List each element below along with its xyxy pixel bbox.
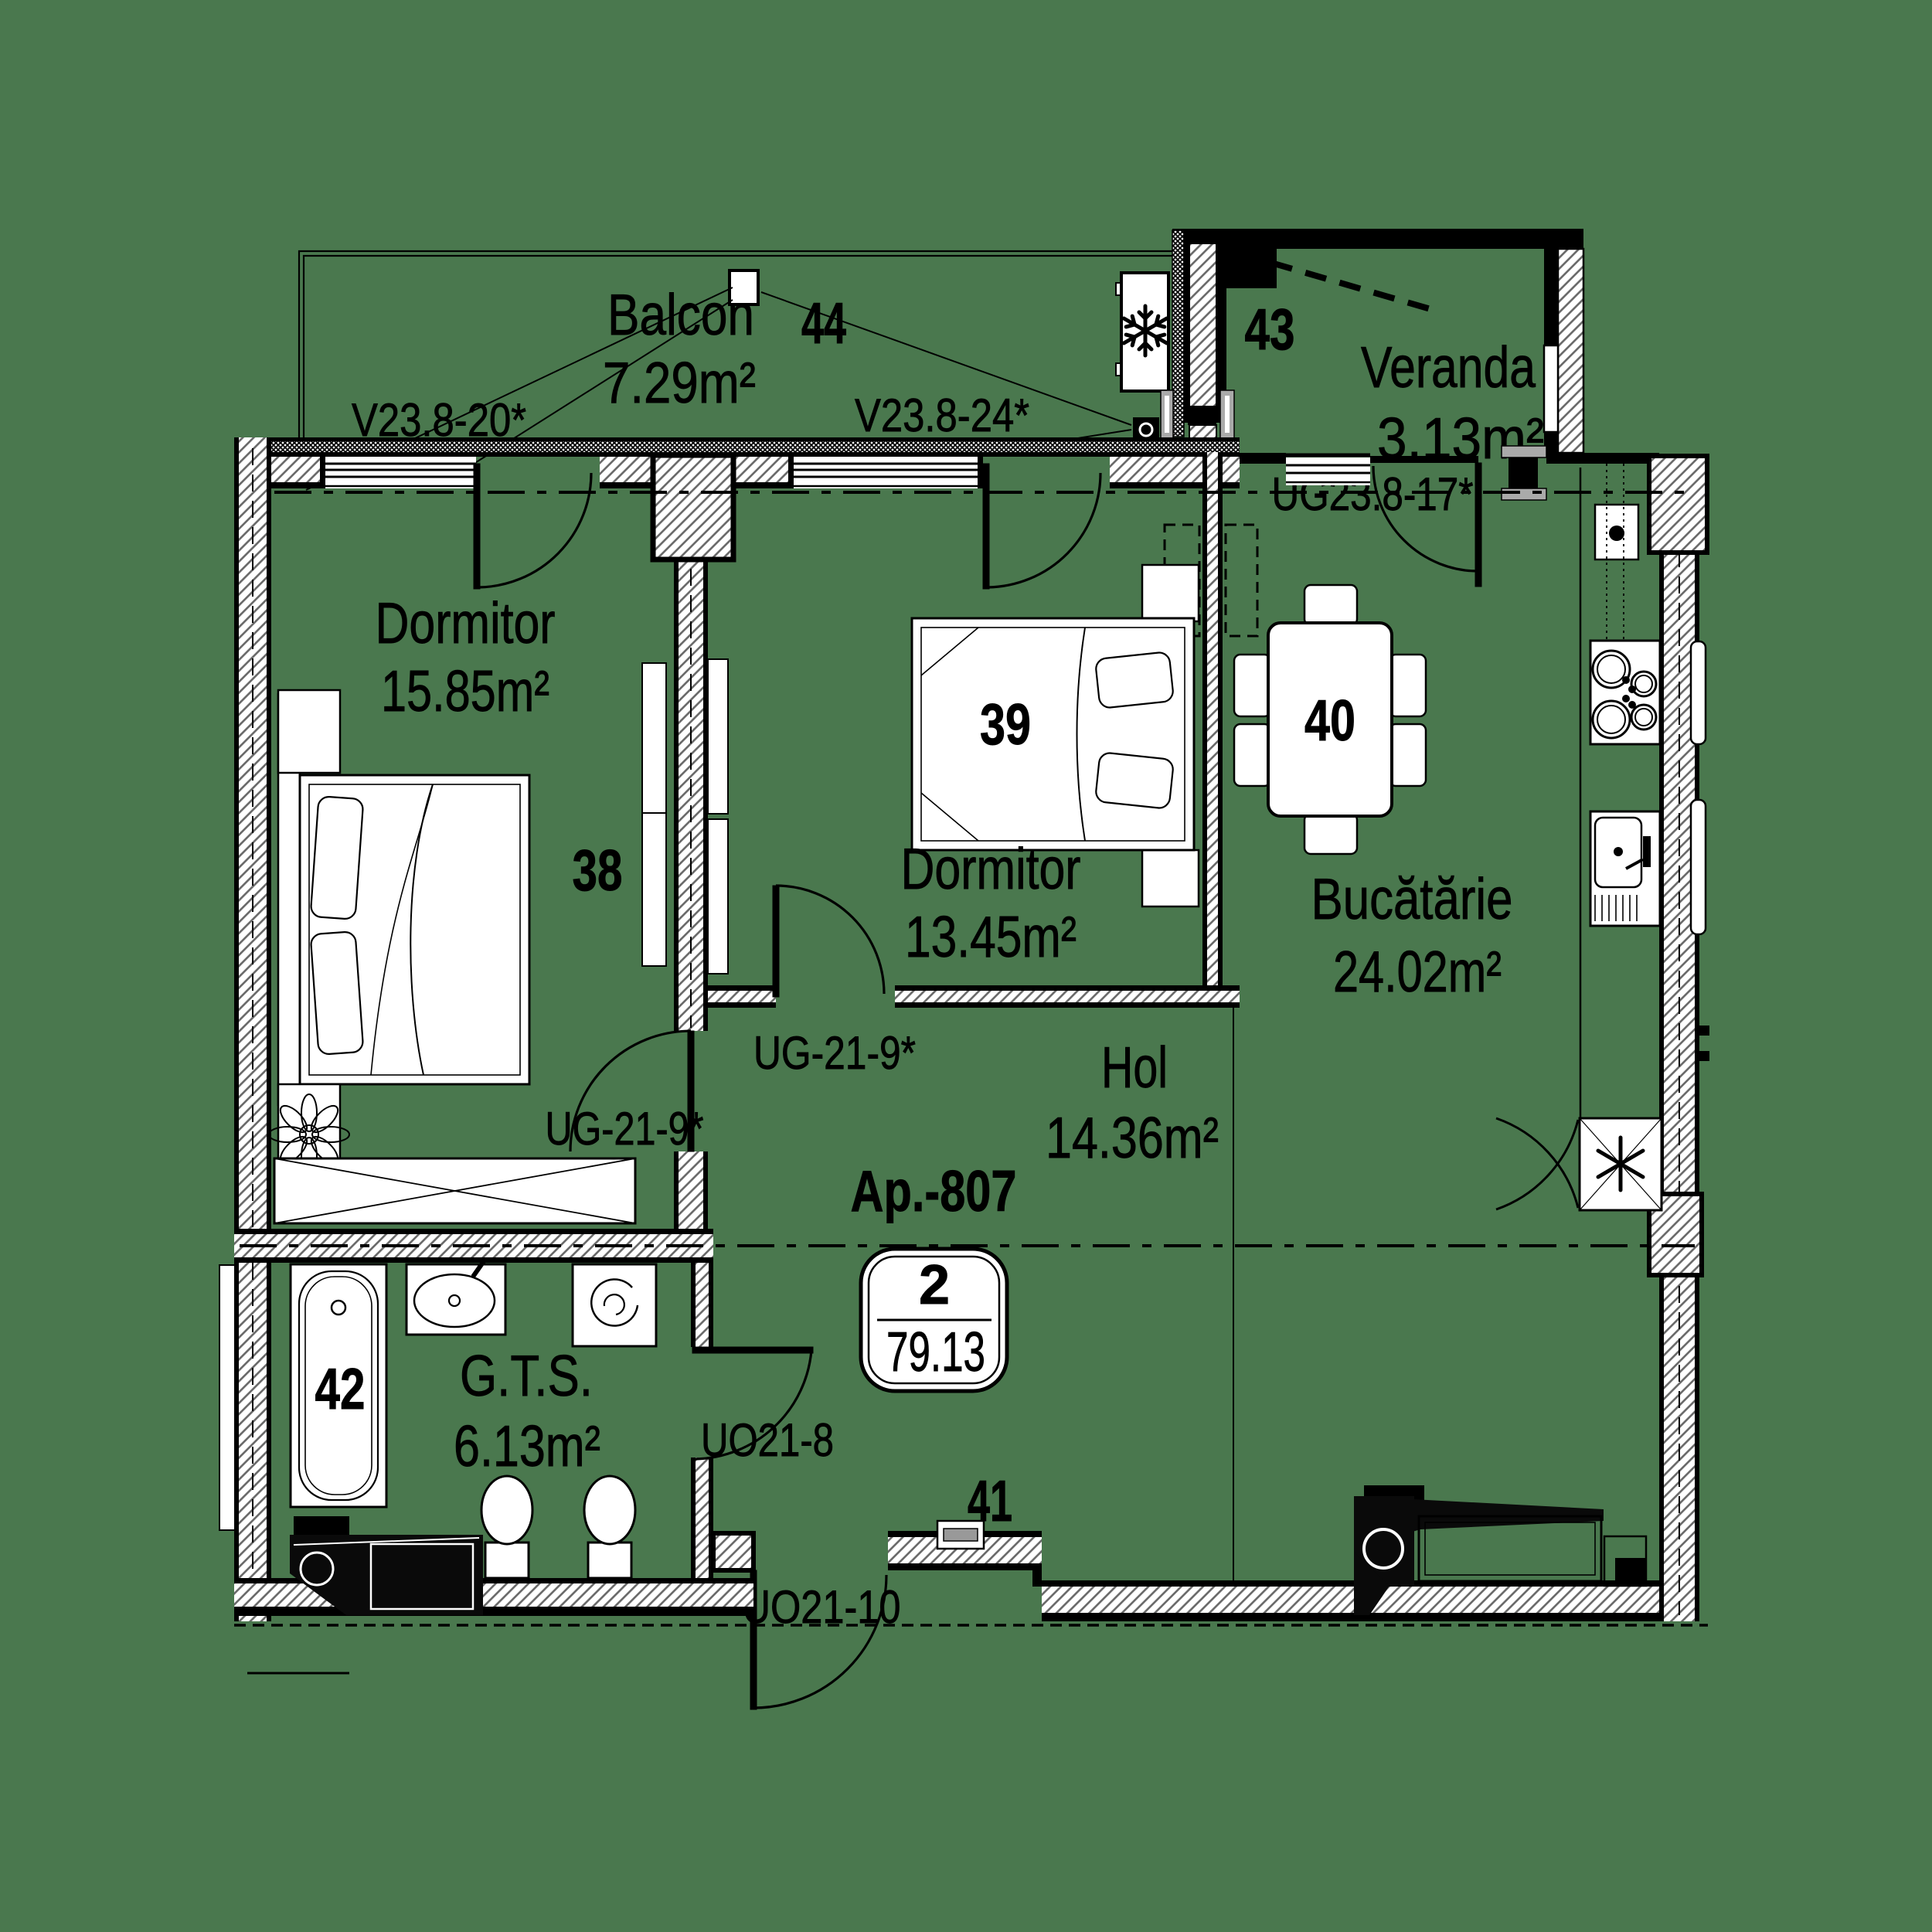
- svg-text:13.45m²: 13.45m²: [905, 904, 1077, 969]
- svg-text:15.85m²: 15.85m²: [381, 658, 549, 723]
- svg-text:6.13m²: 6.13m²: [454, 1413, 600, 1478]
- svg-text:40: 40: [1304, 688, 1355, 753]
- svg-text:41: 41: [968, 1468, 1012, 1533]
- svg-text:Balcon: Balcon: [607, 282, 754, 347]
- svg-text:43: 43: [1245, 297, 1295, 362]
- svg-text:2: 2: [919, 1254, 950, 1316]
- svg-text:UO21-8: UO21-8: [701, 1414, 834, 1466]
- svg-text:38: 38: [573, 838, 623, 903]
- svg-text:G.T.S.: G.T.S.: [460, 1343, 593, 1408]
- svg-text:79.13: 79.13: [886, 1321, 985, 1383]
- svg-text:44: 44: [801, 291, 846, 355]
- svg-text:UO21-10: UO21-10: [743, 1581, 901, 1633]
- svg-text:42: 42: [315, 1356, 366, 1421]
- svg-text:7.29m²: 7.29m²: [603, 350, 756, 415]
- svg-text:Dormitor: Dormitor: [376, 590, 556, 655]
- svg-text:UG-21-9*: UG-21-9*: [753, 1027, 916, 1079]
- svg-text:Bucătărie: Bucătărie: [1311, 866, 1513, 931]
- svg-text:Dormitor: Dormitor: [901, 836, 1081, 901]
- svg-text:24.02m²: 24.02m²: [1333, 939, 1502, 1004]
- svg-text:V23.8-24*: V23.8-24*: [855, 389, 1029, 441]
- svg-text:39: 39: [980, 692, 1031, 757]
- svg-text:UG-21-9*: UG-21-9*: [546, 1103, 704, 1155]
- svg-text:14.36m²: 14.36m²: [1046, 1105, 1219, 1170]
- svg-text:Ap.-807: Ap.-807: [851, 1158, 1017, 1223]
- svg-text:Hol: Hol: [1101, 1035, 1168, 1100]
- svg-text:Veranda: Veranda: [1361, 335, 1536, 400]
